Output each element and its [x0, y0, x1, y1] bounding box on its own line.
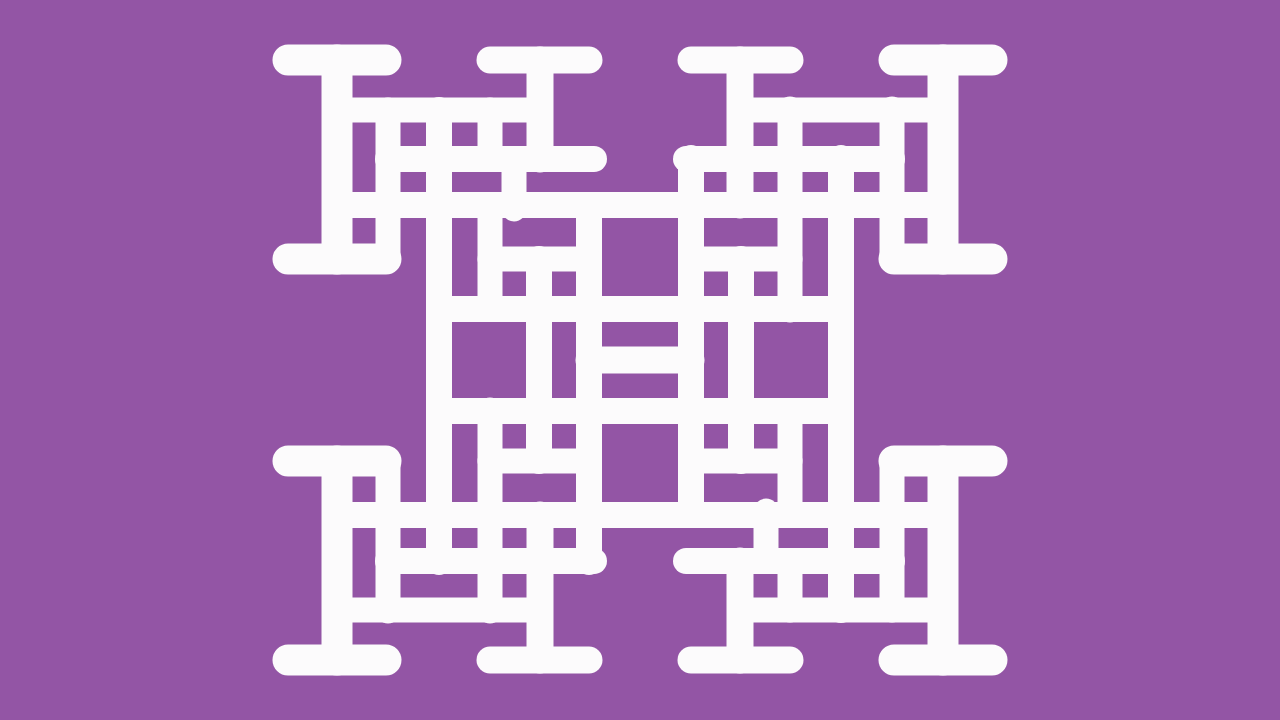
fractal-pattern-canvas — [0, 0, 1280, 720]
fractal-pattern-stage — [0, 0, 1280, 720]
